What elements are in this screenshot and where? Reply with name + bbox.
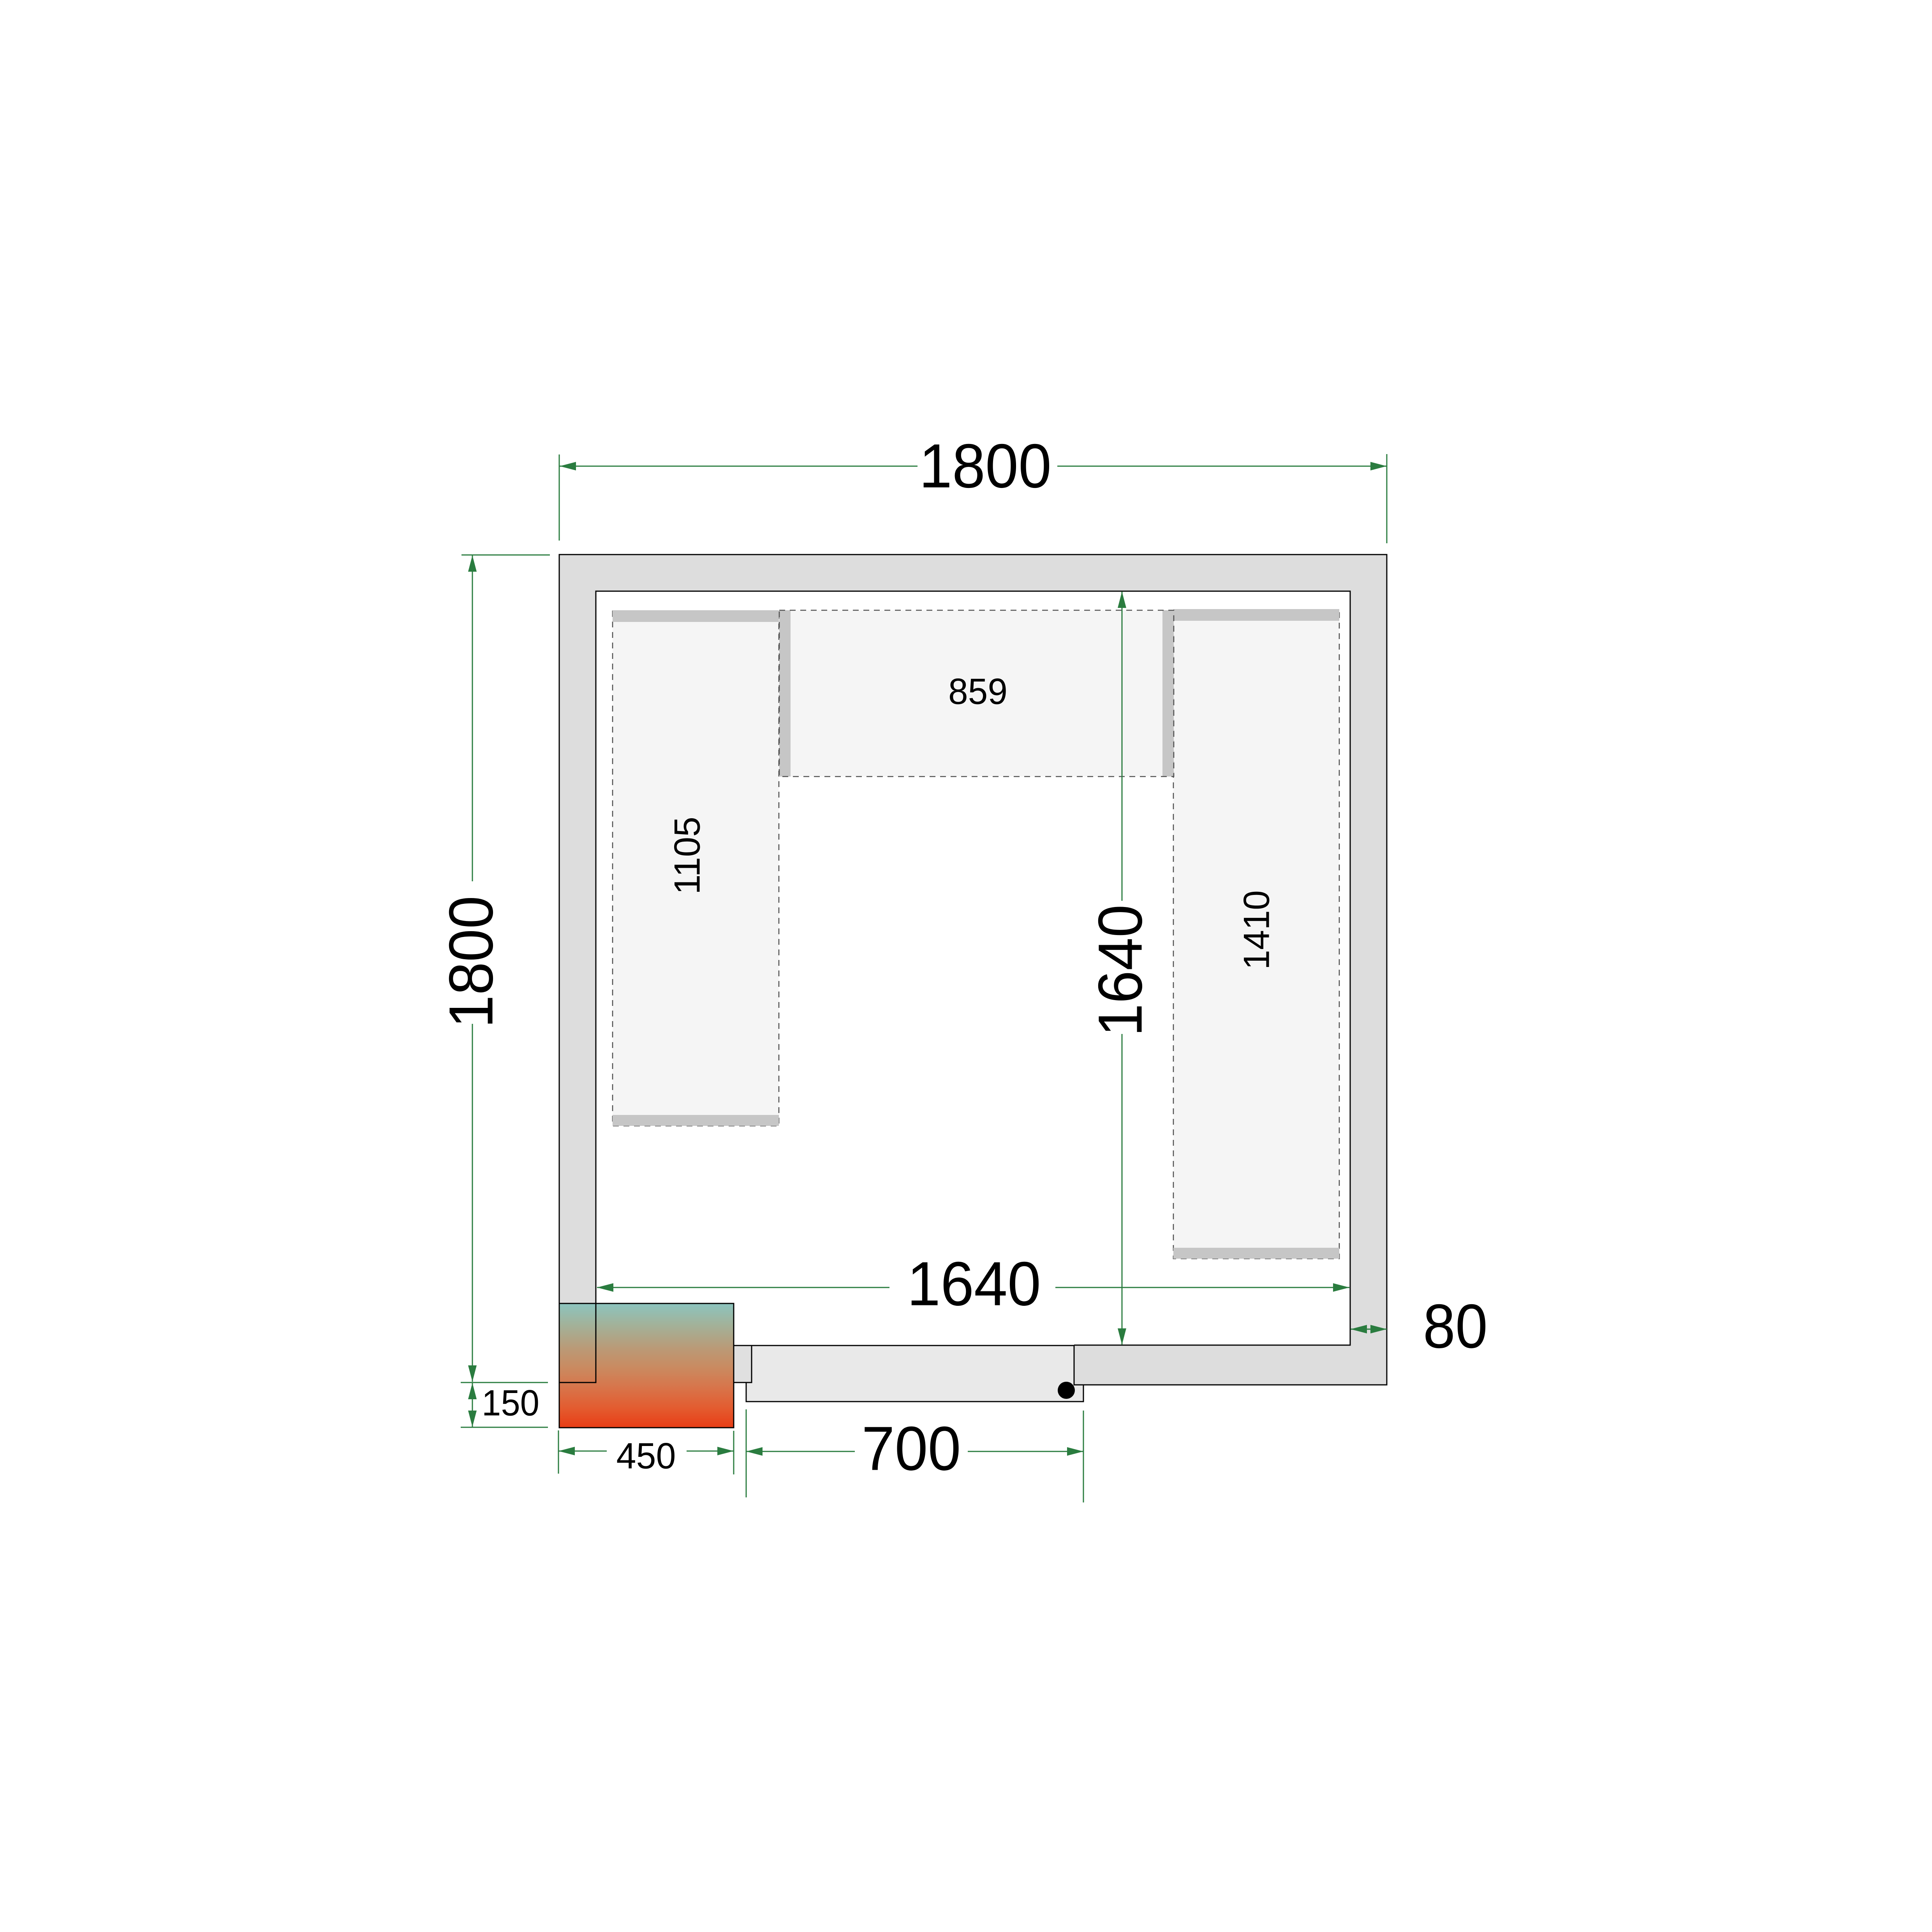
svg-text:1640: 1640: [1085, 905, 1155, 1037]
svg-text:1410: 1410: [1236, 890, 1277, 970]
svg-text:859: 859: [948, 671, 1007, 712]
svg-text:1640: 1640: [907, 1249, 1041, 1319]
svg-text:700: 700: [862, 1414, 961, 1483]
svg-text:1105: 1105: [667, 817, 708, 895]
svg-text:150: 150: [482, 1383, 539, 1423]
svg-text:1800: 1800: [436, 896, 506, 1028]
svg-text:450: 450: [616, 1435, 676, 1476]
svg-text:1800: 1800: [919, 431, 1051, 501]
svg-text:80: 80: [1423, 1291, 1488, 1361]
